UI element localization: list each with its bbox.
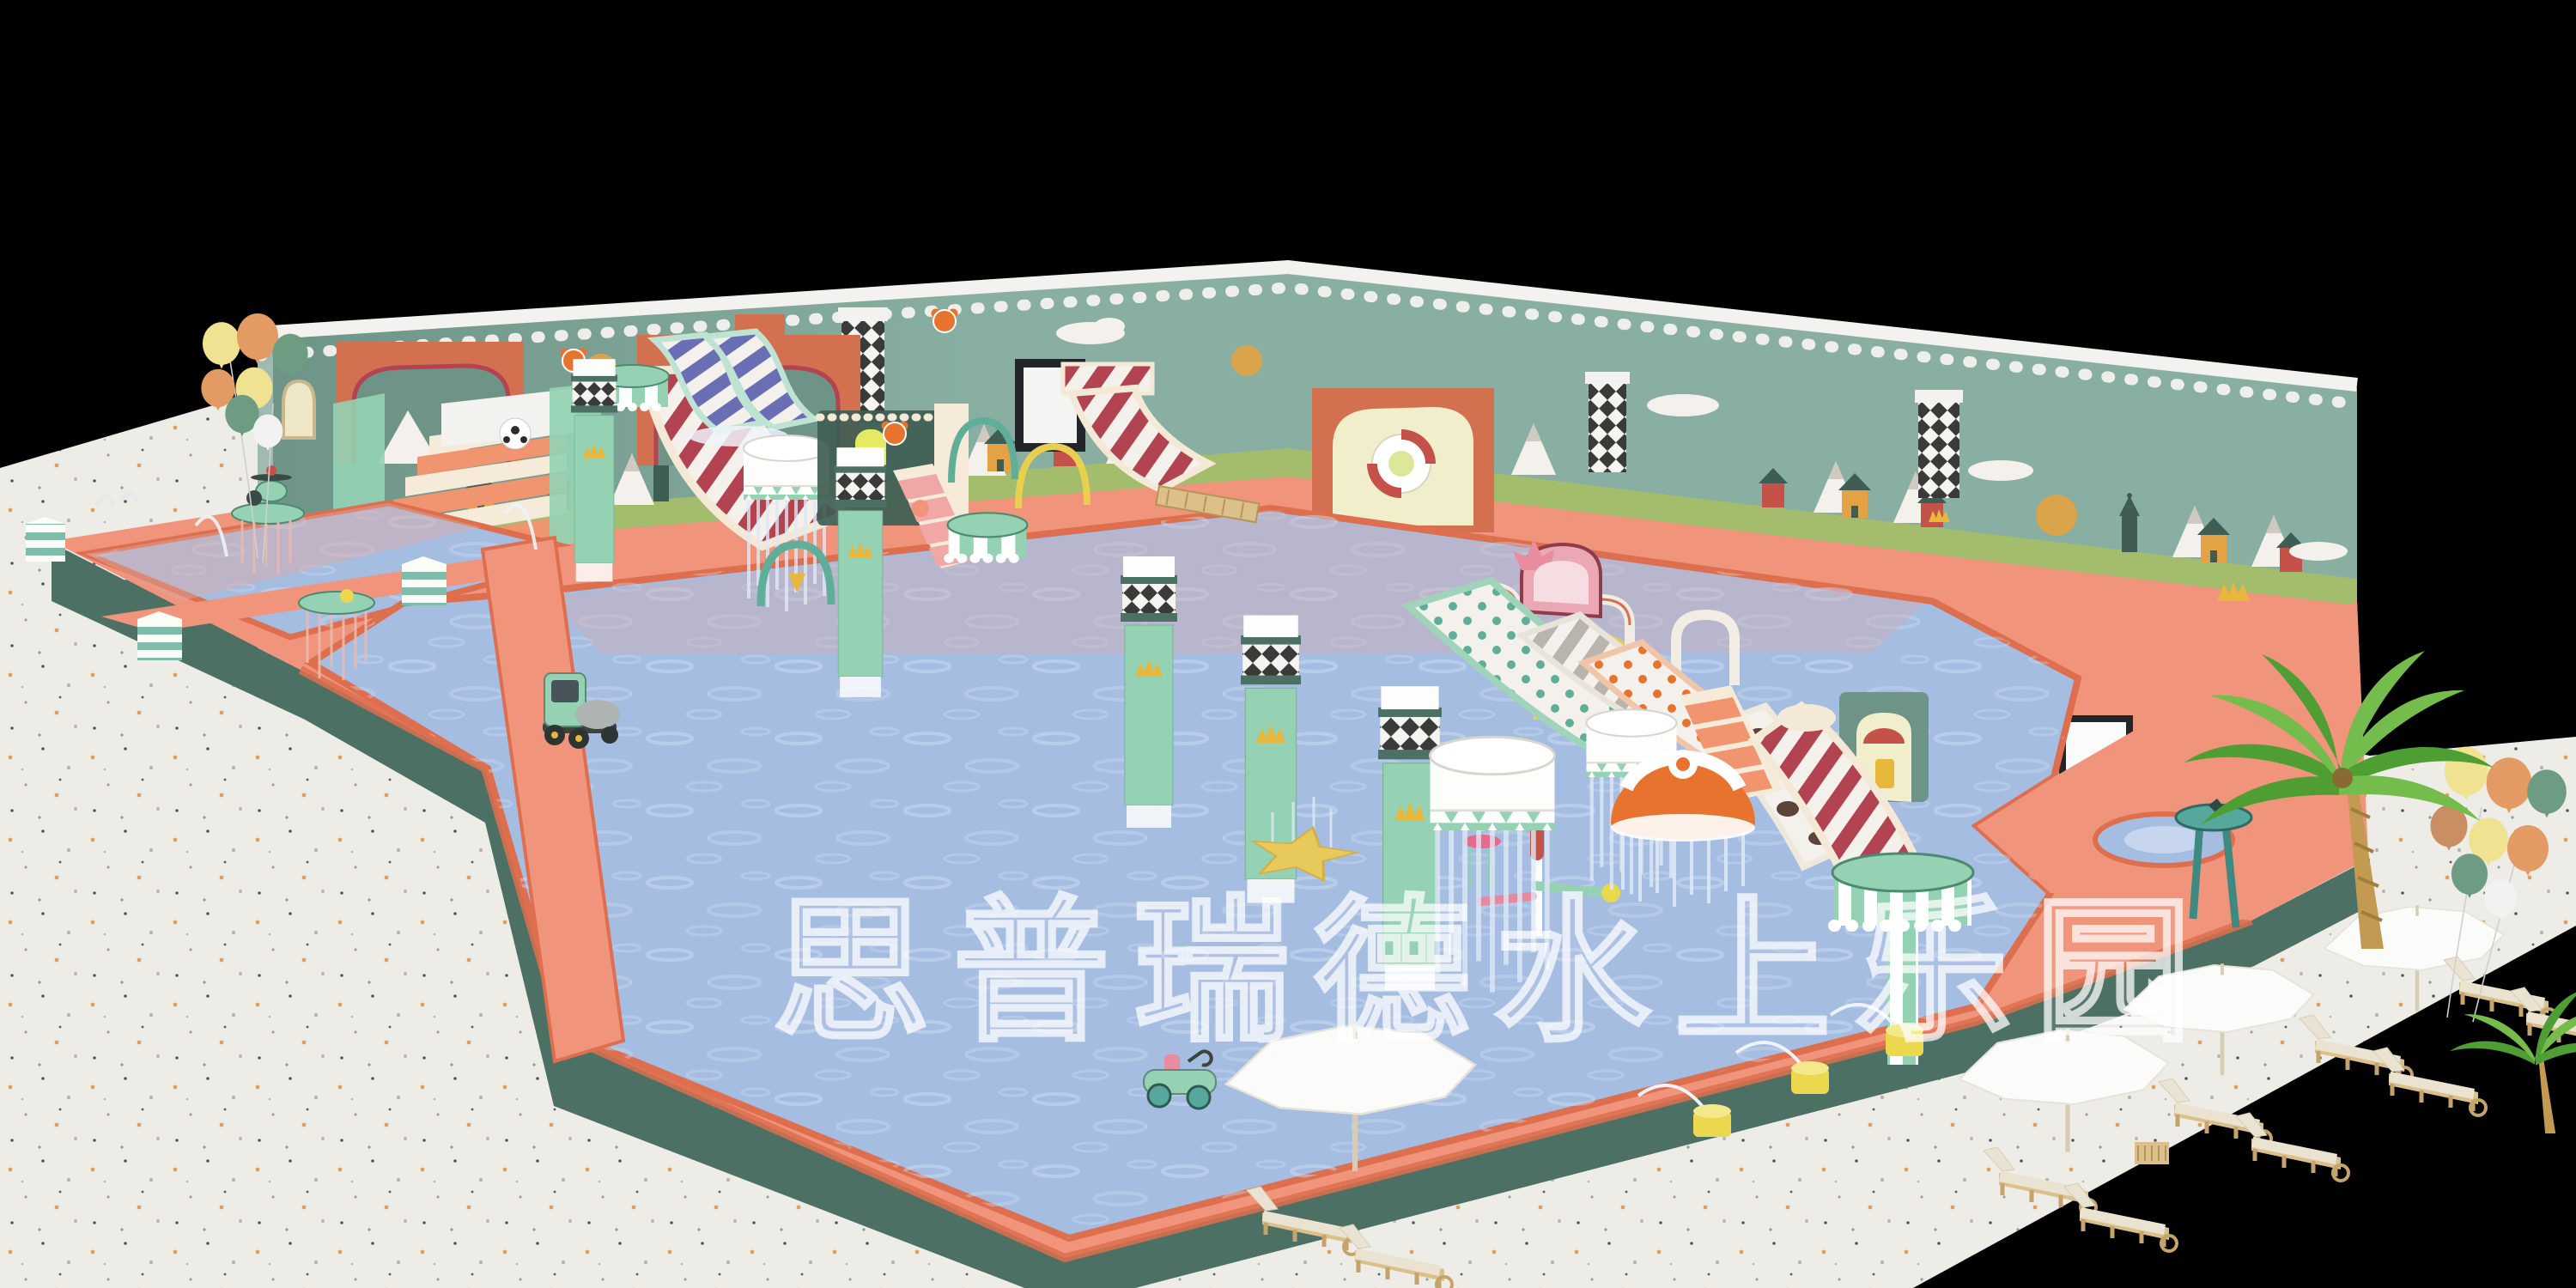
lifebuoy-panel: [1312, 388, 1494, 532]
scene-canvas: WELCOME: [0, 0, 2576, 1288]
waterpark-render: WELCOME: [0, 0, 2576, 1288]
watermark-text: 思普瑞德水上乐园: [773, 881, 2215, 1063]
soccer-ball: [500, 418, 531, 449]
